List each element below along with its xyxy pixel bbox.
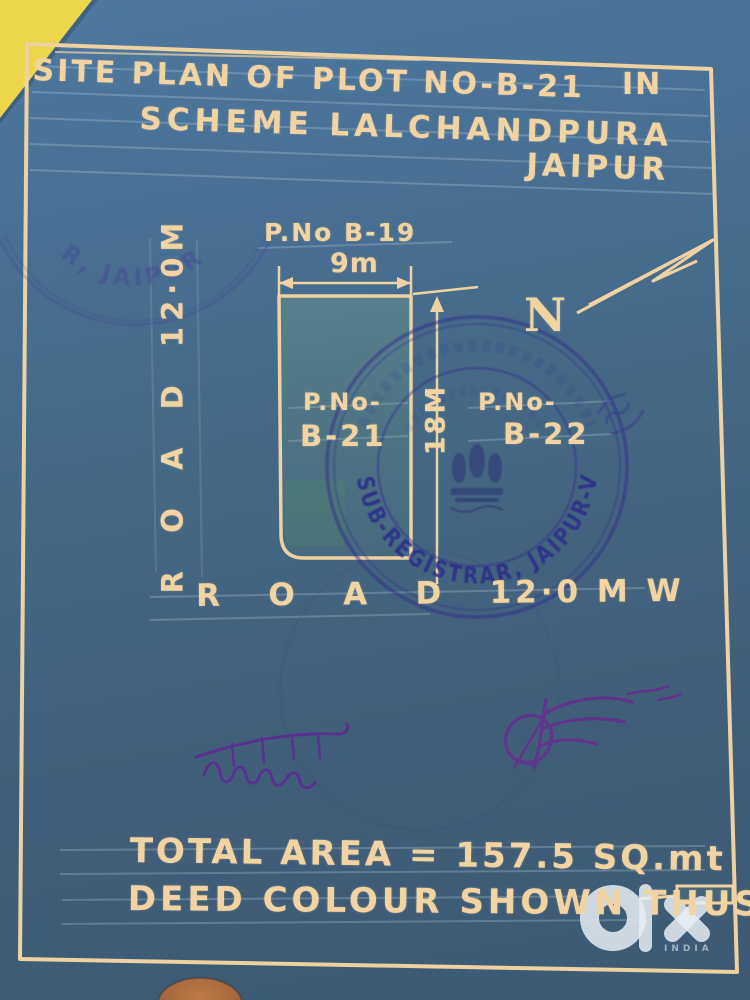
- plot-b21-label-line2: B-21: [300, 422, 387, 451]
- plot-b22-label-line1: P.No-: [478, 390, 557, 414]
- north-label: N: [524, 292, 566, 338]
- road-left-label: R O A D 12·0M: [159, 217, 188, 594]
- title-line3-city: JAIPUR: [526, 150, 670, 186]
- site-plan-photo: R, JAIPUR SUB-REGISTRAR, JAIPUR-V: [0, 0, 750, 1000]
- signature-right-cursive: [506, 686, 680, 768]
- plot-b22-label-line2: B-22: [503, 420, 590, 449]
- deed-colour-text: DEED COLOUR SHOWN THUS: [128, 882, 750, 922]
- faint-registrar-stamp: R, JAIPUR: [0, 224, 276, 325]
- height-dimension-label: 18M: [423, 385, 450, 455]
- title-line1-suffix: IN: [622, 70, 662, 100]
- emblem-motto-squiggle: [451, 506, 503, 512]
- olx-india-label: INDIA: [664, 944, 713, 954]
- adjacent-plot-b19-label: P.No B-19: [264, 220, 416, 245]
- north-arrow-icon: [577, 240, 713, 313]
- stamp-hindi-raj-text: [595, 388, 646, 437]
- signature-left-devanagari: [196, 724, 348, 788]
- total-area-text: TOTAL AREA = 157.5 SQ.mt: [130, 834, 726, 876]
- road-bottom-label: R O A D 12·0 M W: [196, 576, 685, 612]
- width-dimension-label: 9m: [330, 250, 379, 277]
- plot-b21-label-line1: P.No-: [303, 390, 382, 414]
- ashoka-emblem-icon: [451, 444, 503, 512]
- fingertip: [158, 978, 242, 1000]
